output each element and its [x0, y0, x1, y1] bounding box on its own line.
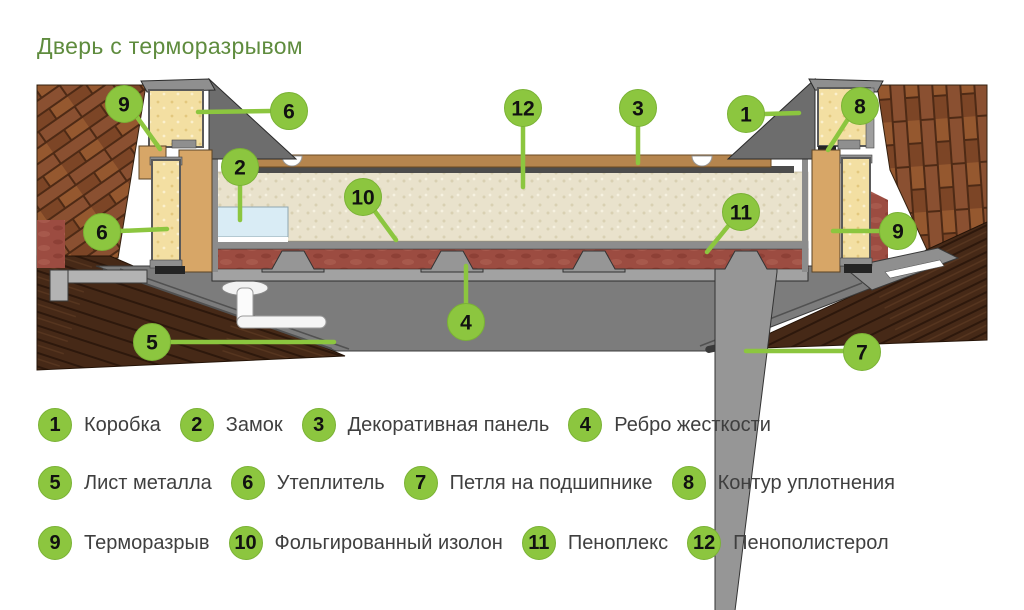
penoplex-wall-edge-left [37, 220, 65, 268]
legend-item-2: 2 Замок [180, 408, 283, 442]
callout-number: 11 [730, 202, 753, 225]
legend-badge: 3 [302, 408, 336, 442]
legend-label: Пеноплекс [568, 532, 668, 555]
door-cross-section-diagram: 9 6 12 3 1 8 2 10 11 6 9 4 5 7 [0, 0, 1024, 610]
legend-badge: 1 [38, 408, 72, 442]
callout-number: 4 [460, 312, 472, 335]
legend-item-8: 8 Контур уплотнения [672, 466, 895, 500]
thermal-break-right [812, 150, 840, 272]
legend-row-3: 9 Терморазрыв 10 Фольгированный изолон 1… [38, 526, 889, 560]
legend-label: Коробка [84, 414, 161, 437]
seal-right-bottom [844, 264, 872, 273]
legend-label: Ребро жесткости [614, 414, 771, 437]
callout-leader [198, 111, 271, 112]
legend-label: Петля на подшипнике [450, 472, 653, 495]
callout-number: 9 [892, 221, 904, 244]
insulation-top-left [149, 90, 203, 147]
legend-item-3: 3 Декоративная панель [302, 408, 550, 442]
callout-number: 3 [632, 98, 644, 121]
legend-badge: 7 [404, 466, 438, 500]
legend-item-7: 7 Петля на подшипнике [404, 466, 653, 500]
legend-label: Утеплитель [277, 472, 385, 495]
callout-number: 1 [740, 104, 752, 127]
callout-number: 6 [96, 222, 108, 245]
infographic-page: Дверь с терморазрывом [0, 0, 1024, 610]
legend-badge: 9 [38, 526, 72, 560]
legend-item-4: 4 Ребро жесткости [568, 408, 771, 442]
legend-label: Пенополистерол [733, 532, 889, 555]
metal-clip [838, 140, 860, 149]
door-edge-wood-left [179, 150, 212, 272]
legend-badge: 8 [672, 466, 706, 500]
legend-item-12: 12 Пенополистерол [687, 526, 889, 560]
insulation-side-left [152, 160, 180, 265]
legend-item-10: 10 Фольгированный изолон [229, 526, 503, 560]
insulation-side-right [842, 158, 870, 264]
legend-badge: 12 [687, 526, 721, 560]
callout-number: 2 [234, 157, 246, 180]
legend-item-9: 9 Терморазрыв [38, 526, 210, 560]
legend-label: Декоративная панель [348, 414, 550, 437]
legend-item-11: 11 Пеноплекс [522, 526, 668, 560]
legend-badge: 10 [229, 526, 263, 560]
legend-label: Фольгированный изолон [275, 532, 503, 555]
polystyrene-core [212, 172, 808, 241]
callout-number: 12 [511, 98, 534, 121]
callout-number: 7 [856, 342, 868, 365]
seal-left-bottom [155, 266, 185, 274]
legend-label: Лист металла [84, 472, 212, 495]
legend-badge: 4 [568, 408, 602, 442]
legend-badge: 5 [38, 466, 72, 500]
legend-row-2: 5 Лист металла 6 Утеплитель 7 Петля на п… [38, 466, 895, 500]
metal-channel-left [212, 150, 218, 272]
izolon-foil-layer [212, 241, 808, 249]
legend-badge: 2 [180, 408, 214, 442]
callout-number: 6 [283, 101, 295, 124]
callout-number: 10 [351, 187, 374, 210]
metal-channel-right [802, 150, 808, 272]
callout-leader [764, 113, 799, 114]
legend-row-1: 1 Коробка 2 Замок 3 Декоративная панель … [38, 408, 771, 442]
legend-label: Контур уплотнения [718, 472, 895, 495]
legend-label: Терморазрыв [84, 532, 210, 555]
lock-block [210, 207, 288, 242]
metal-clip [172, 140, 196, 148]
legend-item-5: 5 Лист металла [38, 466, 212, 500]
legend-item-1: 1 Коробка [38, 408, 161, 442]
legend-badge: 11 [522, 526, 556, 560]
callout-number: 9 [118, 94, 130, 117]
legend-label: Замок [226, 414, 283, 437]
legend-badge: 6 [231, 466, 265, 500]
callout-number: 8 [854, 96, 866, 119]
legend-item-6: 6 Утеплитель [231, 466, 385, 500]
callout-number: 5 [146, 332, 158, 355]
callout-leader [120, 229, 167, 231]
